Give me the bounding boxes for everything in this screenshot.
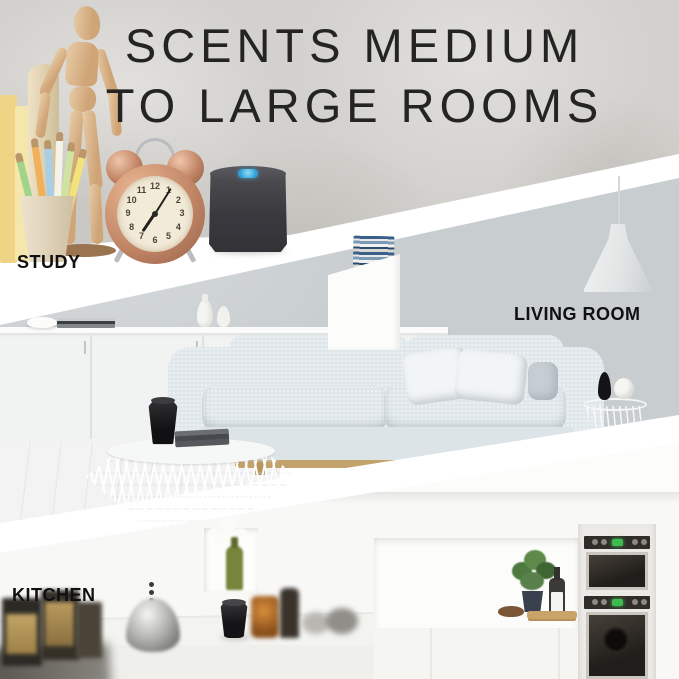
wooden-bowl xyxy=(498,606,524,617)
kitchen-label: KITCHEN xyxy=(12,585,96,606)
pepper-grinder xyxy=(280,588,299,638)
amber-jar xyxy=(251,596,279,638)
oven-indicator-green xyxy=(612,599,623,606)
canister-label xyxy=(45,602,74,646)
drawer-front xyxy=(374,628,578,679)
oven-knob xyxy=(632,599,638,605)
bottle-neck xyxy=(554,567,560,580)
oven-control-panel xyxy=(584,596,650,609)
oven-knob xyxy=(641,539,647,545)
kitchen-canister xyxy=(76,602,102,658)
kitchen-scene: KITCHEN xyxy=(0,0,679,679)
cabinet-shadow xyxy=(230,494,679,504)
oven-knob xyxy=(632,539,638,545)
canister-label xyxy=(6,614,37,654)
oven-indicator-green xyxy=(612,539,623,546)
microwave-door xyxy=(586,552,648,590)
upper-cabinet xyxy=(230,420,679,494)
oven-door-ring xyxy=(600,625,632,655)
oven-knob xyxy=(592,539,598,545)
kitchen-photo-clip xyxy=(0,0,679,679)
oven-knob xyxy=(641,599,647,605)
oven-knob xyxy=(601,539,607,545)
cutting-board xyxy=(527,611,577,619)
oven-knob xyxy=(601,599,607,605)
microwave-control-panel xyxy=(584,536,650,549)
kitchen-canister xyxy=(2,598,42,666)
diffuser-top xyxy=(222,599,246,606)
green-bottle xyxy=(226,546,243,590)
product-infographic: 121234567891011 SCENTS MEDIUM TO LARGE R… xyxy=(0,0,679,679)
plant-pot xyxy=(521,591,544,612)
oven-knob xyxy=(592,599,598,605)
blurred-dishes xyxy=(302,606,360,638)
